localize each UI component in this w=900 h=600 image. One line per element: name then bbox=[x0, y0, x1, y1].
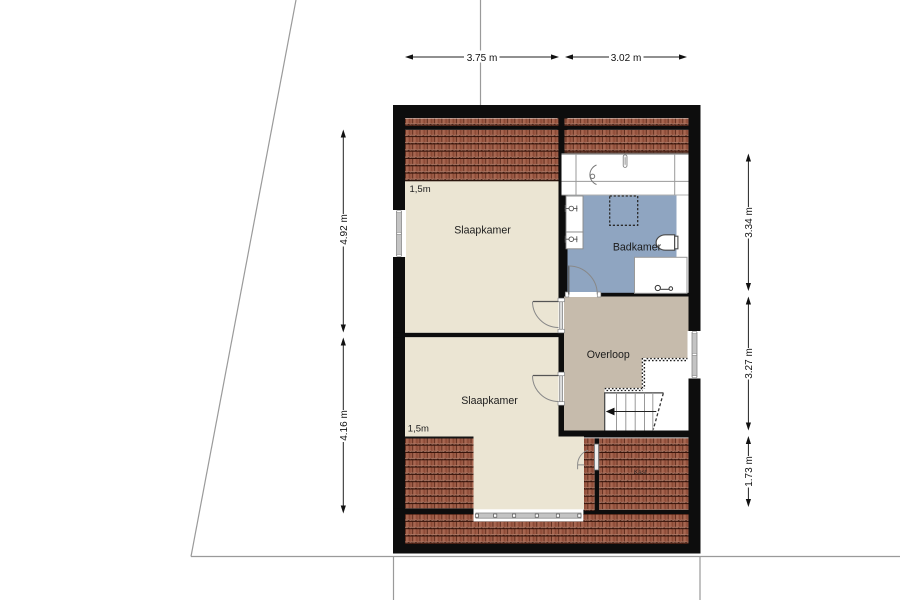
svg-text:3.02 m: 3.02 m bbox=[611, 53, 642, 64]
svg-text:Slaapkamer: Slaapkamer bbox=[461, 395, 518, 407]
svg-text:Slaapkamer: Slaapkamer bbox=[454, 225, 511, 237]
svg-text:4.16 m: 4.16 m bbox=[339, 410, 350, 441]
svg-text:4.92 m: 4.92 m bbox=[339, 214, 350, 245]
svg-text:1.73 m: 1.73 m bbox=[744, 456, 755, 487]
svg-text:Overloop: Overloop bbox=[587, 349, 630, 361]
svg-text:3.34 m: 3.34 m bbox=[744, 207, 755, 238]
svg-text:3.27 m: 3.27 m bbox=[744, 348, 755, 379]
svg-text:Badkamer: Badkamer bbox=[613, 241, 662, 253]
svg-text:1,5m: 1,5m bbox=[410, 184, 431, 195]
svg-text:3.75 m: 3.75 m bbox=[467, 53, 498, 64]
svg-text:1,5m: 1,5m bbox=[408, 424, 429, 435]
svg-text:Kast: Kast bbox=[634, 469, 647, 476]
